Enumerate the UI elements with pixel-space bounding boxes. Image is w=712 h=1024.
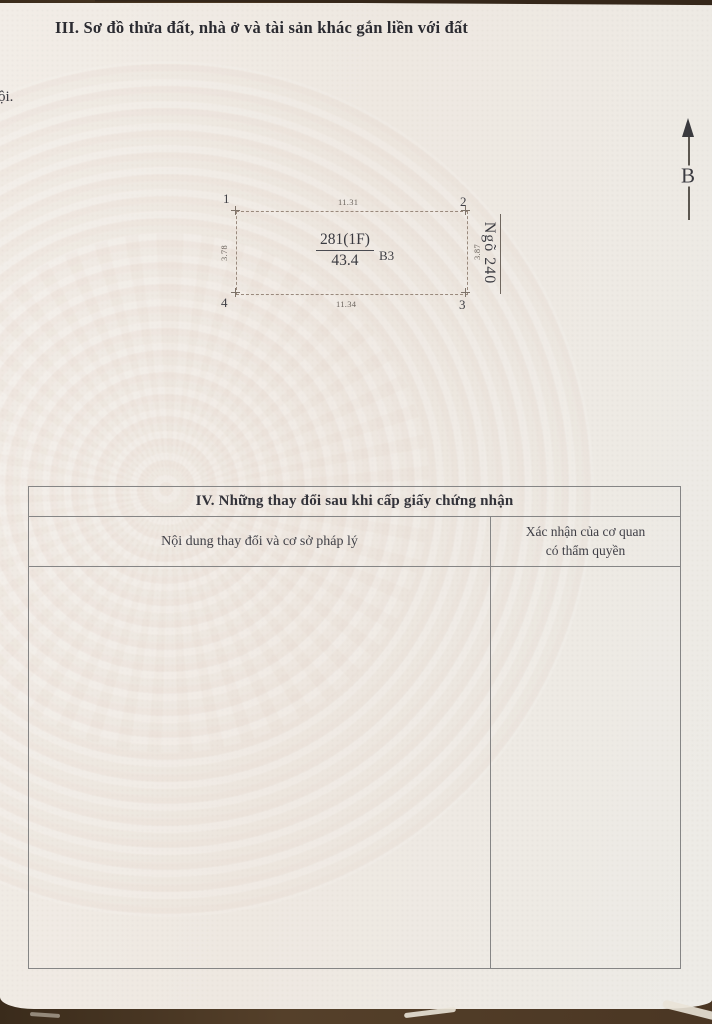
corner-tick-1 [231, 206, 240, 215]
table-body-row [29, 567, 680, 968]
section-iv-table: IV. Những thay đổi sau khi cấp giấy chứn… [28, 486, 681, 969]
parcel-label: 281(1F) 43.4 B3 [316, 231, 394, 270]
margin-text-fragment: ội. [0, 89, 13, 106]
column-header-content-changes: Nội dung thay đổi và cơ sở pháp lý [29, 517, 491, 566]
string-on-desk [30, 1012, 60, 1018]
road-name-label: Ngõ 240 [480, 222, 498, 285]
road-edge-line [500, 214, 501, 294]
dimension-bottom: 11.34 [336, 299, 356, 309]
column-header-authority-confirmation: Xác nhận của cơ quan có thẩm quyền [491, 517, 680, 566]
authority-confirmation-cell-empty [491, 567, 680, 968]
table-header-row: Nội dung thay đổi và cơ sở pháp lý Xác n… [29, 517, 680, 567]
content-changes-cell-empty [29, 567, 491, 968]
parcel-code: 281(1F) [316, 231, 374, 251]
section-iv-title: IV. Những thay đổi sau khi cấp giấy chứn… [29, 487, 680, 517]
authority-header-line1: Xác nhận của cơ quan [526, 523, 646, 541]
authority-header-line2: có thẩm quyền [546, 542, 625, 560]
north-arrow-head-icon [682, 118, 694, 137]
dimension-top: 11.31 [338, 197, 358, 207]
corner-number-2: 2 [460, 194, 467, 210]
section-iii-title: III. Sơ đồ thửa đất, nhà ở và tài sản kh… [55, 18, 525, 38]
corner-number-3: 3 [459, 297, 466, 313]
parcel-area: 43.4 [331, 251, 358, 270]
north-label: B [679, 166, 697, 187]
parcel-code-area-fraction: 281(1F) 43.4 [316, 231, 374, 270]
corner-tick-3 [461, 288, 470, 297]
corner-number-4: 4 [221, 295, 228, 311]
corner-tick-4 [231, 288, 240, 297]
dimension-left: 3.78 [219, 245, 229, 261]
paper-top-edge [0, 3, 130, 7]
certificate-paper-page: III. Sơ đồ thửa đất, nhà ở và tài sản kh… [0, 3, 712, 1009]
corner-number-1: 1 [223, 191, 230, 207]
building-label: B3 [379, 248, 394, 264]
photo-of-certificate-page: III. Sơ đồ thửa đất, nhà ở và tài sản kh… [0, 0, 712, 1024]
